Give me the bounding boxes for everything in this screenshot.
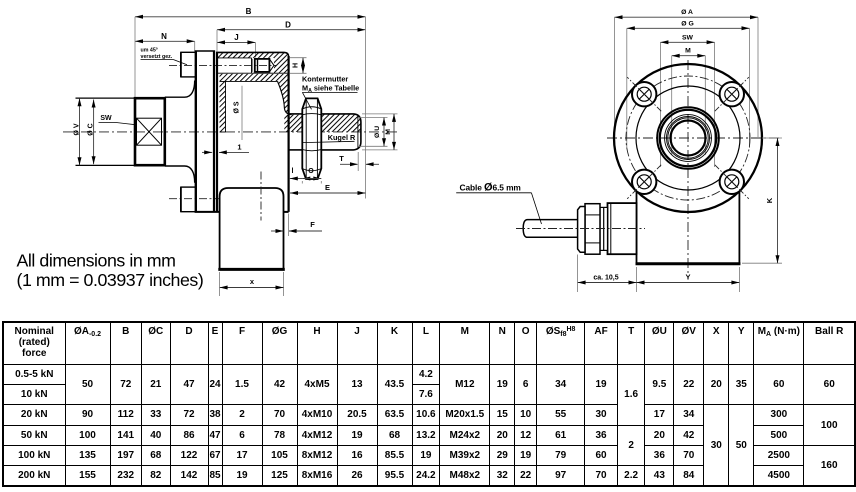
svg-text:M: M xyxy=(685,48,691,55)
svg-text:Ø U: Ø U xyxy=(374,126,381,138)
svg-text:Ø A: Ø A xyxy=(681,9,693,16)
svg-text:x: x xyxy=(250,277,255,286)
svg-text:D: D xyxy=(285,20,291,29)
svg-text:All dimensions in mm: All dimensions in mm xyxy=(17,251,176,271)
svg-text:Kontermutter: Kontermutter xyxy=(302,75,348,84)
svg-text:Ø S: Ø S xyxy=(234,101,241,113)
svg-text:T: T xyxy=(339,154,344,163)
svg-text:Ø G: Ø G xyxy=(681,20,693,27)
svg-text:SW: SW xyxy=(100,115,112,122)
svg-text:(1 mm = 0.03937 inches): (1 mm = 0.03937 inches) xyxy=(17,270,204,290)
svg-text:ca. 10,5: ca. 10,5 xyxy=(593,275,618,282)
svg-text:J: J xyxy=(234,33,238,42)
svg-text:N: N xyxy=(161,32,167,41)
svg-text:Ø C: Ø C xyxy=(88,123,95,135)
svg-text:versetzt gez.: versetzt gez. xyxy=(141,54,173,60)
svg-text:F: F xyxy=(310,220,315,229)
svg-text:E: E xyxy=(325,183,330,192)
svg-text:Cable Ø6.5 mm: Cable Ø6.5 mm xyxy=(460,182,521,194)
svg-text:SW: SW xyxy=(682,34,694,41)
svg-text:H: H xyxy=(292,63,299,68)
svg-text:O: O xyxy=(308,168,314,175)
svg-text:Ø V: Ø V xyxy=(74,123,81,135)
svg-text:um 45°: um 45° xyxy=(141,48,158,54)
svg-text:B: B xyxy=(246,7,252,16)
svg-text:l: l xyxy=(292,168,294,175)
svg-text:Kugel R: Kugel R xyxy=(328,133,356,142)
svg-text:1: 1 xyxy=(237,143,241,152)
svg-text:Y: Y xyxy=(685,273,690,282)
svg-text:M: M xyxy=(385,129,392,135)
svg-text:K: K xyxy=(765,197,774,203)
